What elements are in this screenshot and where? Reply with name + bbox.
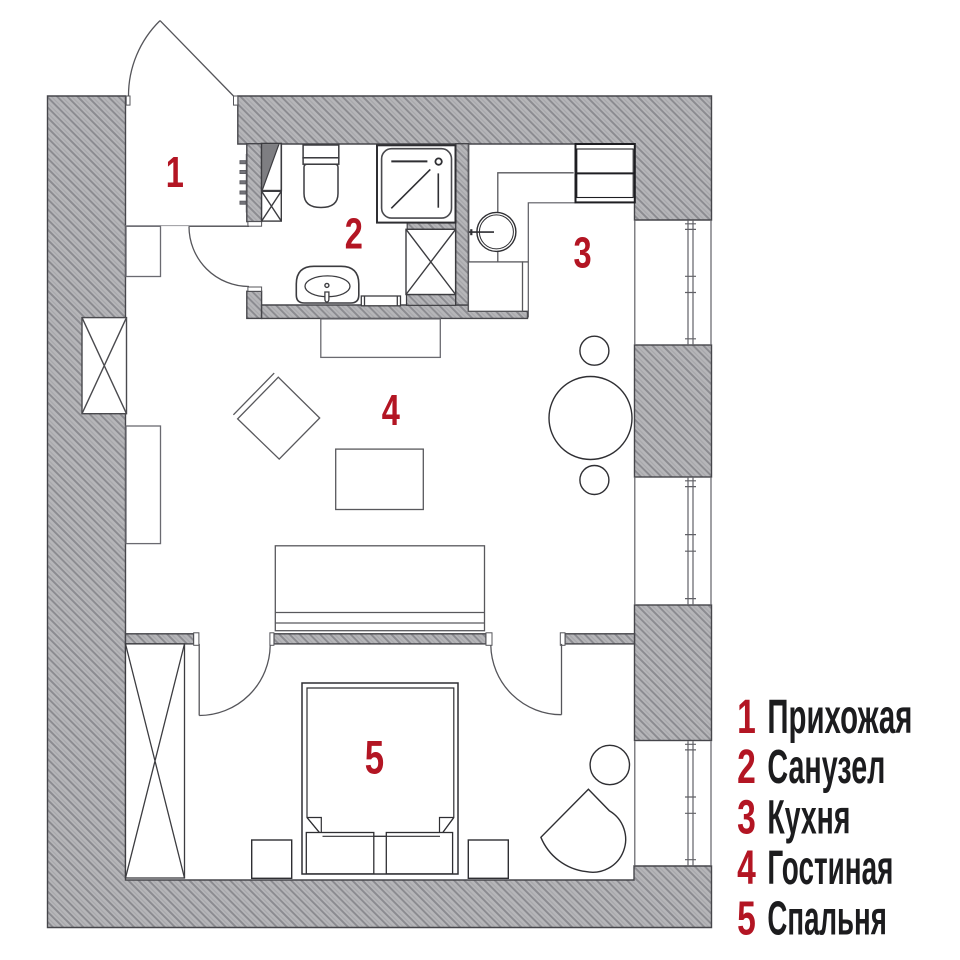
svg-text:Прихожая: Прихожая <box>767 691 912 744</box>
svg-text:5: 5 <box>365 732 384 784</box>
svg-text:4: 4 <box>737 840 756 894</box>
svg-text:Кухня: Кухня <box>767 792 850 845</box>
svg-text:5: 5 <box>737 891 756 945</box>
svg-text:1: 1 <box>737 689 756 743</box>
svg-text:4: 4 <box>382 387 401 436</box>
svg-text:Санузел: Санузел <box>767 741 885 794</box>
svg-text:2: 2 <box>345 210 363 259</box>
svg-text:Гостиная: Гостиная <box>767 842 893 895</box>
svg-text:2: 2 <box>737 739 756 793</box>
svg-text:1: 1 <box>166 148 184 197</box>
svg-text:3: 3 <box>737 790 756 844</box>
svg-text:Спальня: Спальня <box>767 893 887 946</box>
svg-text:3: 3 <box>573 229 591 278</box>
